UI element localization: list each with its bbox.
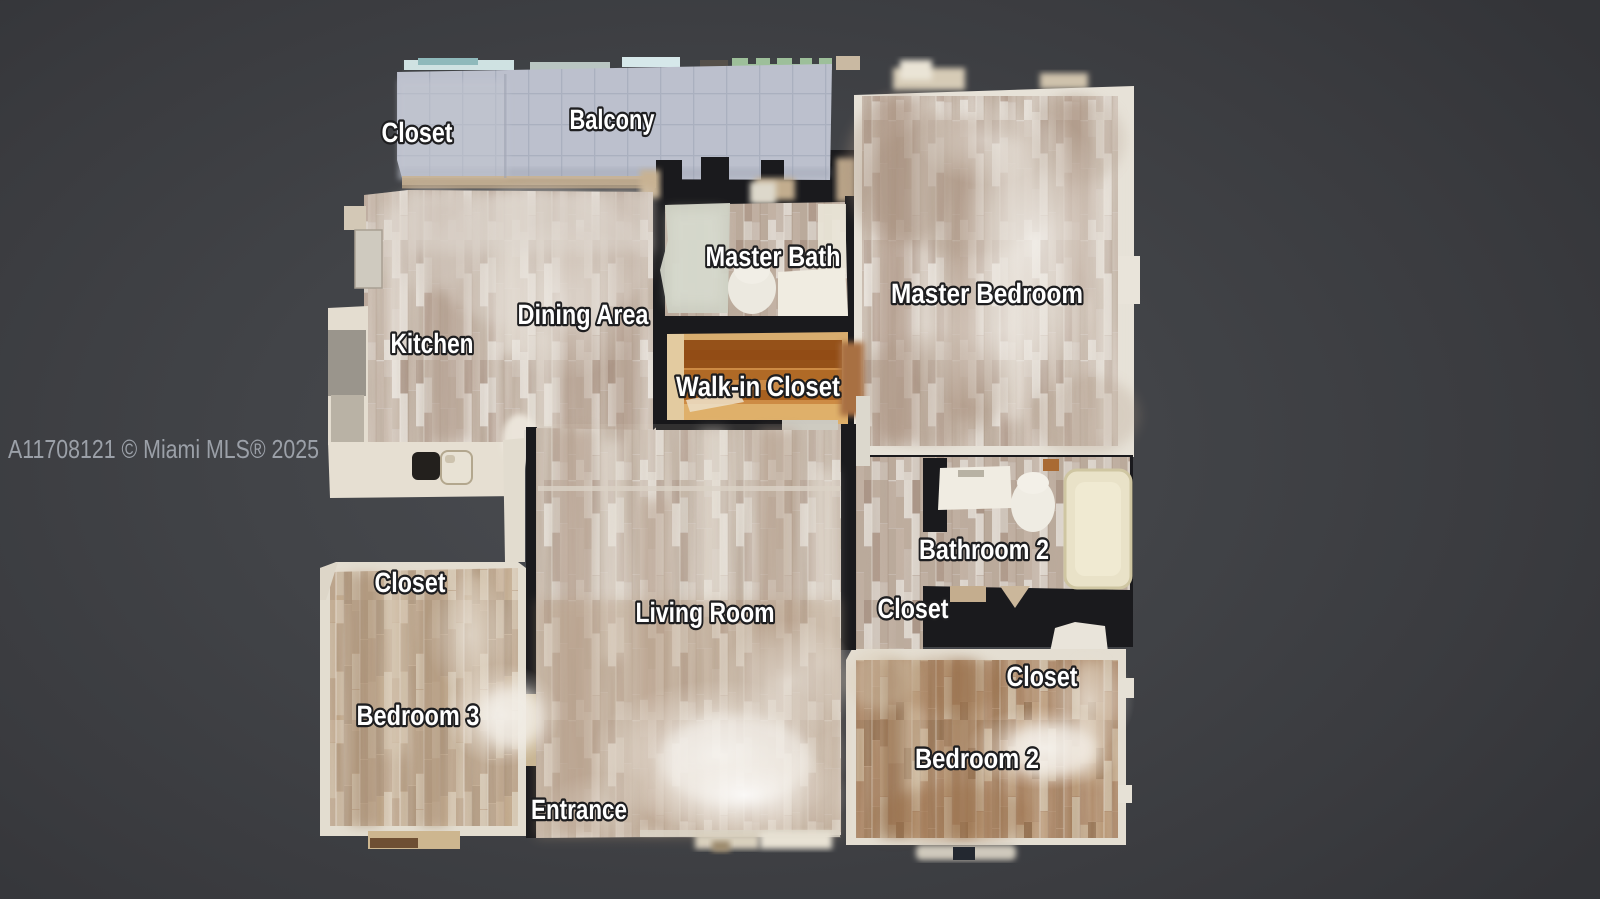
svg-text:Bathroom 2: Bathroom 2 xyxy=(919,534,1049,565)
svg-text:Bedroom 3: Bedroom 3 xyxy=(357,700,480,731)
svg-text:Closet: Closet xyxy=(375,567,446,598)
svg-text:Kitchen: Kitchen xyxy=(391,328,474,359)
svg-text:Bedroom 2: Bedroom 2 xyxy=(915,743,1039,774)
svg-text:Entrance: Entrance xyxy=(531,794,627,825)
svg-text:Dining Area: Dining Area xyxy=(518,299,649,330)
svg-text:Closet: Closet xyxy=(1007,661,1078,692)
svg-text:Master Bedroom: Master Bedroom xyxy=(891,278,1083,309)
svg-text:A11708121 © Miami MLS® 2025: A11708121 © Miami MLS® 2025 xyxy=(8,434,319,464)
svg-text:Master Bath: Master Bath xyxy=(706,241,841,272)
svg-text:Closet: Closet xyxy=(382,117,453,148)
svg-text:Walk-in Closet: Walk-in Closet xyxy=(676,371,840,402)
svg-text:Living Room: Living Room xyxy=(636,597,775,628)
svg-text:Balcony: Balcony xyxy=(570,104,655,135)
svg-text:Closet: Closet xyxy=(878,593,949,624)
